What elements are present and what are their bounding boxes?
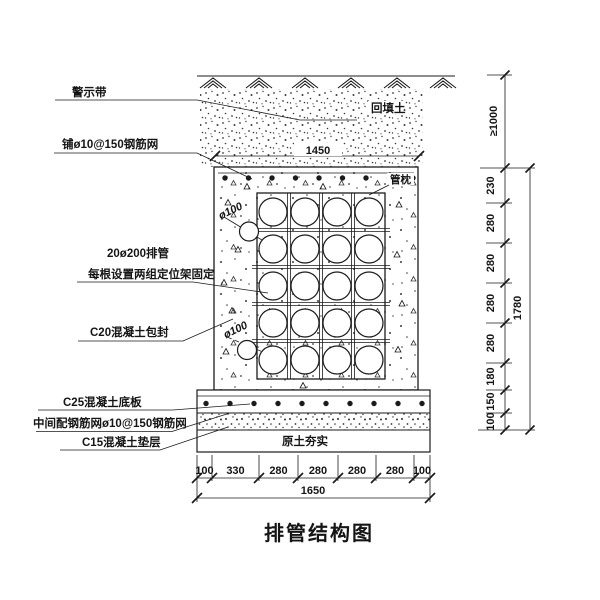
compacted-soil-label: 原土夯实: [282, 434, 328, 448]
cover-depth-label: ≥1000: [488, 106, 500, 137]
pipe-circle: [355, 272, 383, 300]
pipe-circle: [323, 346, 351, 374]
callout-encasement: C20混凝土包封: [78, 319, 233, 341]
pipe-circle: [259, 235, 287, 263]
pipe-circle: [291, 235, 319, 263]
base-slab-label: C25混凝土底板: [63, 395, 142, 409]
right-dimensions: ≥1000 230 280 280 280 280 180 150 100 17…: [478, 71, 535, 435]
drawing-title: 排管结构图: [264, 521, 374, 545]
pipe-bank-structure-drawing: 回填土 1450: [0, 0, 600, 600]
right-seg-label: 180: [485, 367, 497, 385]
small-pipe-circle: [240, 222, 259, 241]
bottom-seg-label: 280: [309, 465, 327, 477]
pipe-circle: [291, 309, 319, 337]
pipe-circle: [291, 198, 319, 226]
bottom-dimensions: 100 330 280 280 280 280 100 1650: [192, 455, 435, 503]
bottom-seg-label: 280: [386, 465, 404, 477]
bottom-total-label: 1650: [301, 485, 325, 497]
backfill-label: 回填土: [371, 101, 406, 115]
pipe-circle: [355, 346, 383, 374]
bottom-seg-label: 100: [413, 465, 431, 477]
top-mesh-label: 铺ø10@150钢筋网: [62, 137, 158, 151]
drawing-canvas: 回填土 1450: [0, 0, 600, 600]
pipe-circle: [259, 198, 287, 226]
pipe-cradle-label: 管枕: [390, 173, 411, 186]
pipe-circle: [323, 235, 351, 263]
right-seg-label: 230: [485, 176, 497, 194]
cushion-layer: [198, 413, 430, 430]
dim-ticks: [501, 71, 535, 435]
dim-top-width-value: 1450: [306, 145, 330, 157]
pipe-circle: [259, 346, 287, 374]
right-total-label: 1780: [512, 296, 524, 320]
warning-tape-label: 警示带: [71, 85, 107, 99]
pipe-circle: [259, 272, 287, 300]
right-seg-label: 280: [485, 254, 497, 272]
right-seg-label: 280: [485, 334, 497, 352]
bottom-seg-label: 280: [269, 465, 287, 477]
ground-hatch-icon: [200, 78, 456, 88]
bottom-seg-label: 330: [226, 465, 244, 477]
middle-mesh-label: 中间配钢筋网ø10@150钢筋网: [33, 416, 187, 430]
cushion-label: C15混凝土垫层: [82, 435, 161, 449]
right-seg-label: 280: [485, 214, 497, 232]
pipe-circle: [259, 309, 287, 337]
pipe-circle: [323, 272, 351, 300]
pipe-circle: [291, 346, 319, 374]
right-seg-label: 280: [485, 294, 497, 312]
bottom-seg-label: 280: [348, 465, 366, 477]
encasement-label: C20混凝土包封: [90, 325, 169, 339]
pipe-circle: [355, 235, 383, 263]
base-slab: 原土夯实: [197, 390, 430, 452]
pipes-label-line1: 20ø200排管: [107, 246, 170, 260]
pipe-circle: [355, 309, 383, 337]
pipe-circle: [323, 309, 351, 337]
small-pipe-circle: [238, 341, 257, 360]
pipe-circle: [323, 198, 351, 226]
dim-chain-lines: [505, 75, 530, 430]
bottom-seg-label: 100: [195, 465, 213, 477]
pipes-label-line2: 每根设置两组定位架固定: [88, 267, 215, 281]
pipe-circle: [291, 272, 319, 300]
right-seg-label: 150: [485, 392, 497, 410]
pipe-circle: [355, 198, 383, 226]
right-seg-label: 100: [485, 412, 497, 430]
